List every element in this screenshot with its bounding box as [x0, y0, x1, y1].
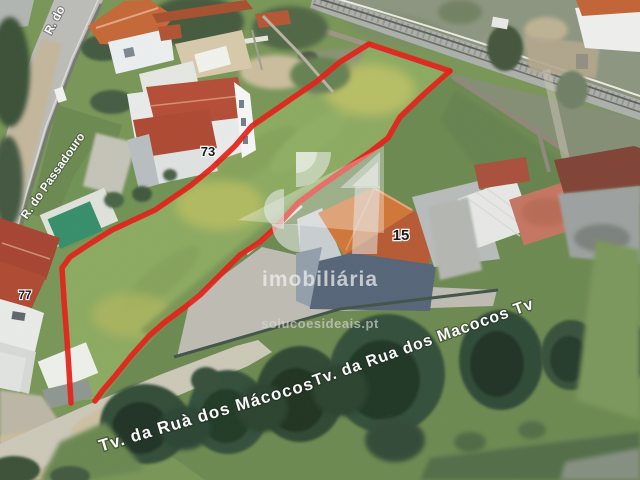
svg-text:imobiliária: imobiliária: [262, 268, 378, 291]
svg-text:solucoesideais.pt: solucoesideais.pt: [261, 316, 379, 331]
